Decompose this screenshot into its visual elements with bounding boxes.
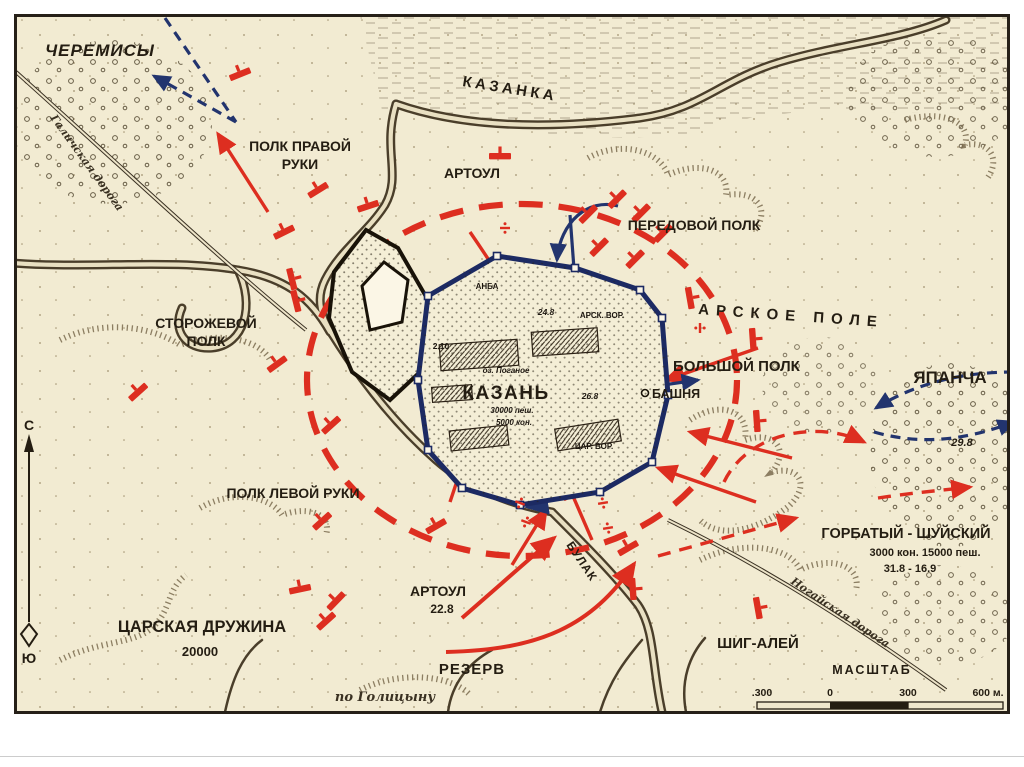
shrub-cluster [875, 565, 1015, 665]
label-bolshoy-polk: БОЛЬШОЙ ПОЛК [673, 357, 801, 375]
label-yapancha: ЯПАНЧА [913, 368, 986, 387]
label-shig-aley: ШИГ-АЛЕЙ [717, 634, 799, 652]
city-date-label: 26.8 [581, 391, 599, 401]
label-polk-levoy: ПОЛК ЛЕВОЙ РУКИ [226, 484, 359, 501]
compass-south-label: Ю [22, 650, 36, 666]
slide-bottom-rule [0, 756, 1024, 757]
scale-tick-label: 0 [827, 687, 833, 699]
city-gate-label: АНБА [476, 282, 499, 291]
compass-north-label: С [24, 417, 34, 433]
wall-tower-symbol [415, 377, 422, 384]
wall-tower-symbol [459, 485, 466, 492]
city-arsk-gate-label: АРСК. ВОР. [580, 311, 624, 320]
label-gorbaty-shuysky: ГОРБАТЫЙ - ШУЙСКИЙ [821, 524, 990, 542]
label-artoul-south-date: 22.8 [430, 602, 454, 616]
shrub-cluster [847, 33, 1023, 157]
label-polk-pravoy-2: РУКИ [282, 156, 318, 172]
city-fill [418, 256, 668, 505]
label-tsarskaya-druzhina: ЦАРСКАЯ ДРУЖИНА [118, 618, 286, 636]
label-tsarskaya-strength: 20000 [182, 644, 218, 659]
wall-tower-symbol [637, 287, 644, 294]
scale-title: МАСШТАБ [832, 663, 912, 677]
label-kazan-city: КАЗАНЬ [462, 383, 549, 404]
label-peredovoy-polk: ПЕРЕДОВОЙ ПОЛК [628, 216, 761, 233]
city-lake-label: оз. Поганое [483, 366, 530, 375]
city-date-label: 2.10 [433, 341, 450, 351]
label-gorbaty-strength: 3000 кон. 15000 пеш. [870, 547, 981, 559]
scale-tick-label: 600 м. [972, 687, 1003, 699]
scale-tick-label: .300 [752, 687, 773, 699]
label-yapancha-date: 29.8 [950, 437, 973, 449]
wall-tower-symbol [425, 293, 432, 300]
label-cheremisy: ЧЕРЕМИСЫ [45, 41, 155, 60]
label-polk-pravoy: ПОЛК ПРАВОЙ [249, 137, 351, 154]
wall-tower-symbol [649, 459, 656, 466]
label-rezerv: РЕЗЕРВ [439, 661, 505, 678]
label-gorbaty-dates: 31.8 - 16.9 [884, 563, 937, 575]
label-artoul-north: АРТОУЛ [444, 165, 500, 181]
shrub-cluster [870, 363, 1024, 547]
shrub-cluster [12, 40, 212, 204]
shrub-cluster [762, 337, 878, 433]
city-strength-label: 5000 кон. [496, 418, 532, 427]
label-artoul-south: АРТОУЛ [410, 583, 466, 599]
label-bashnya: БАШНЯ [652, 387, 700, 401]
battle-map-of-kazan: С Ю МАСШТАБ .300 0 300 600 м. ЧЕРЕМИСЫ К… [0, 0, 1024, 767]
scale-tick-label: 300 [899, 687, 917, 699]
city-date-label: 24.8 [537, 307, 555, 317]
wall-tower-symbol [572, 265, 579, 272]
wall-tower-symbol [425, 447, 432, 454]
wall-tower-symbol [659, 315, 666, 322]
wall-tower-symbol [494, 253, 501, 260]
city-tsar-gate-label: ЦАР. ВОР. [575, 442, 613, 451]
wall-tower-symbol [597, 489, 604, 496]
city-strength-label: 30000 пеш. [490, 406, 533, 415]
label-storozhevoy-polk-2: ПОЛК [187, 333, 226, 349]
label-source-note: по Голицыну [335, 690, 436, 705]
slide-canvas: С Ю МАСШТАБ .300 0 300 600 м. ЧЕРЕМИСЫ К… [0, 0, 1024, 767]
label-storozhevoy-polk: СТОРОЖЕВОЙ [155, 314, 256, 331]
